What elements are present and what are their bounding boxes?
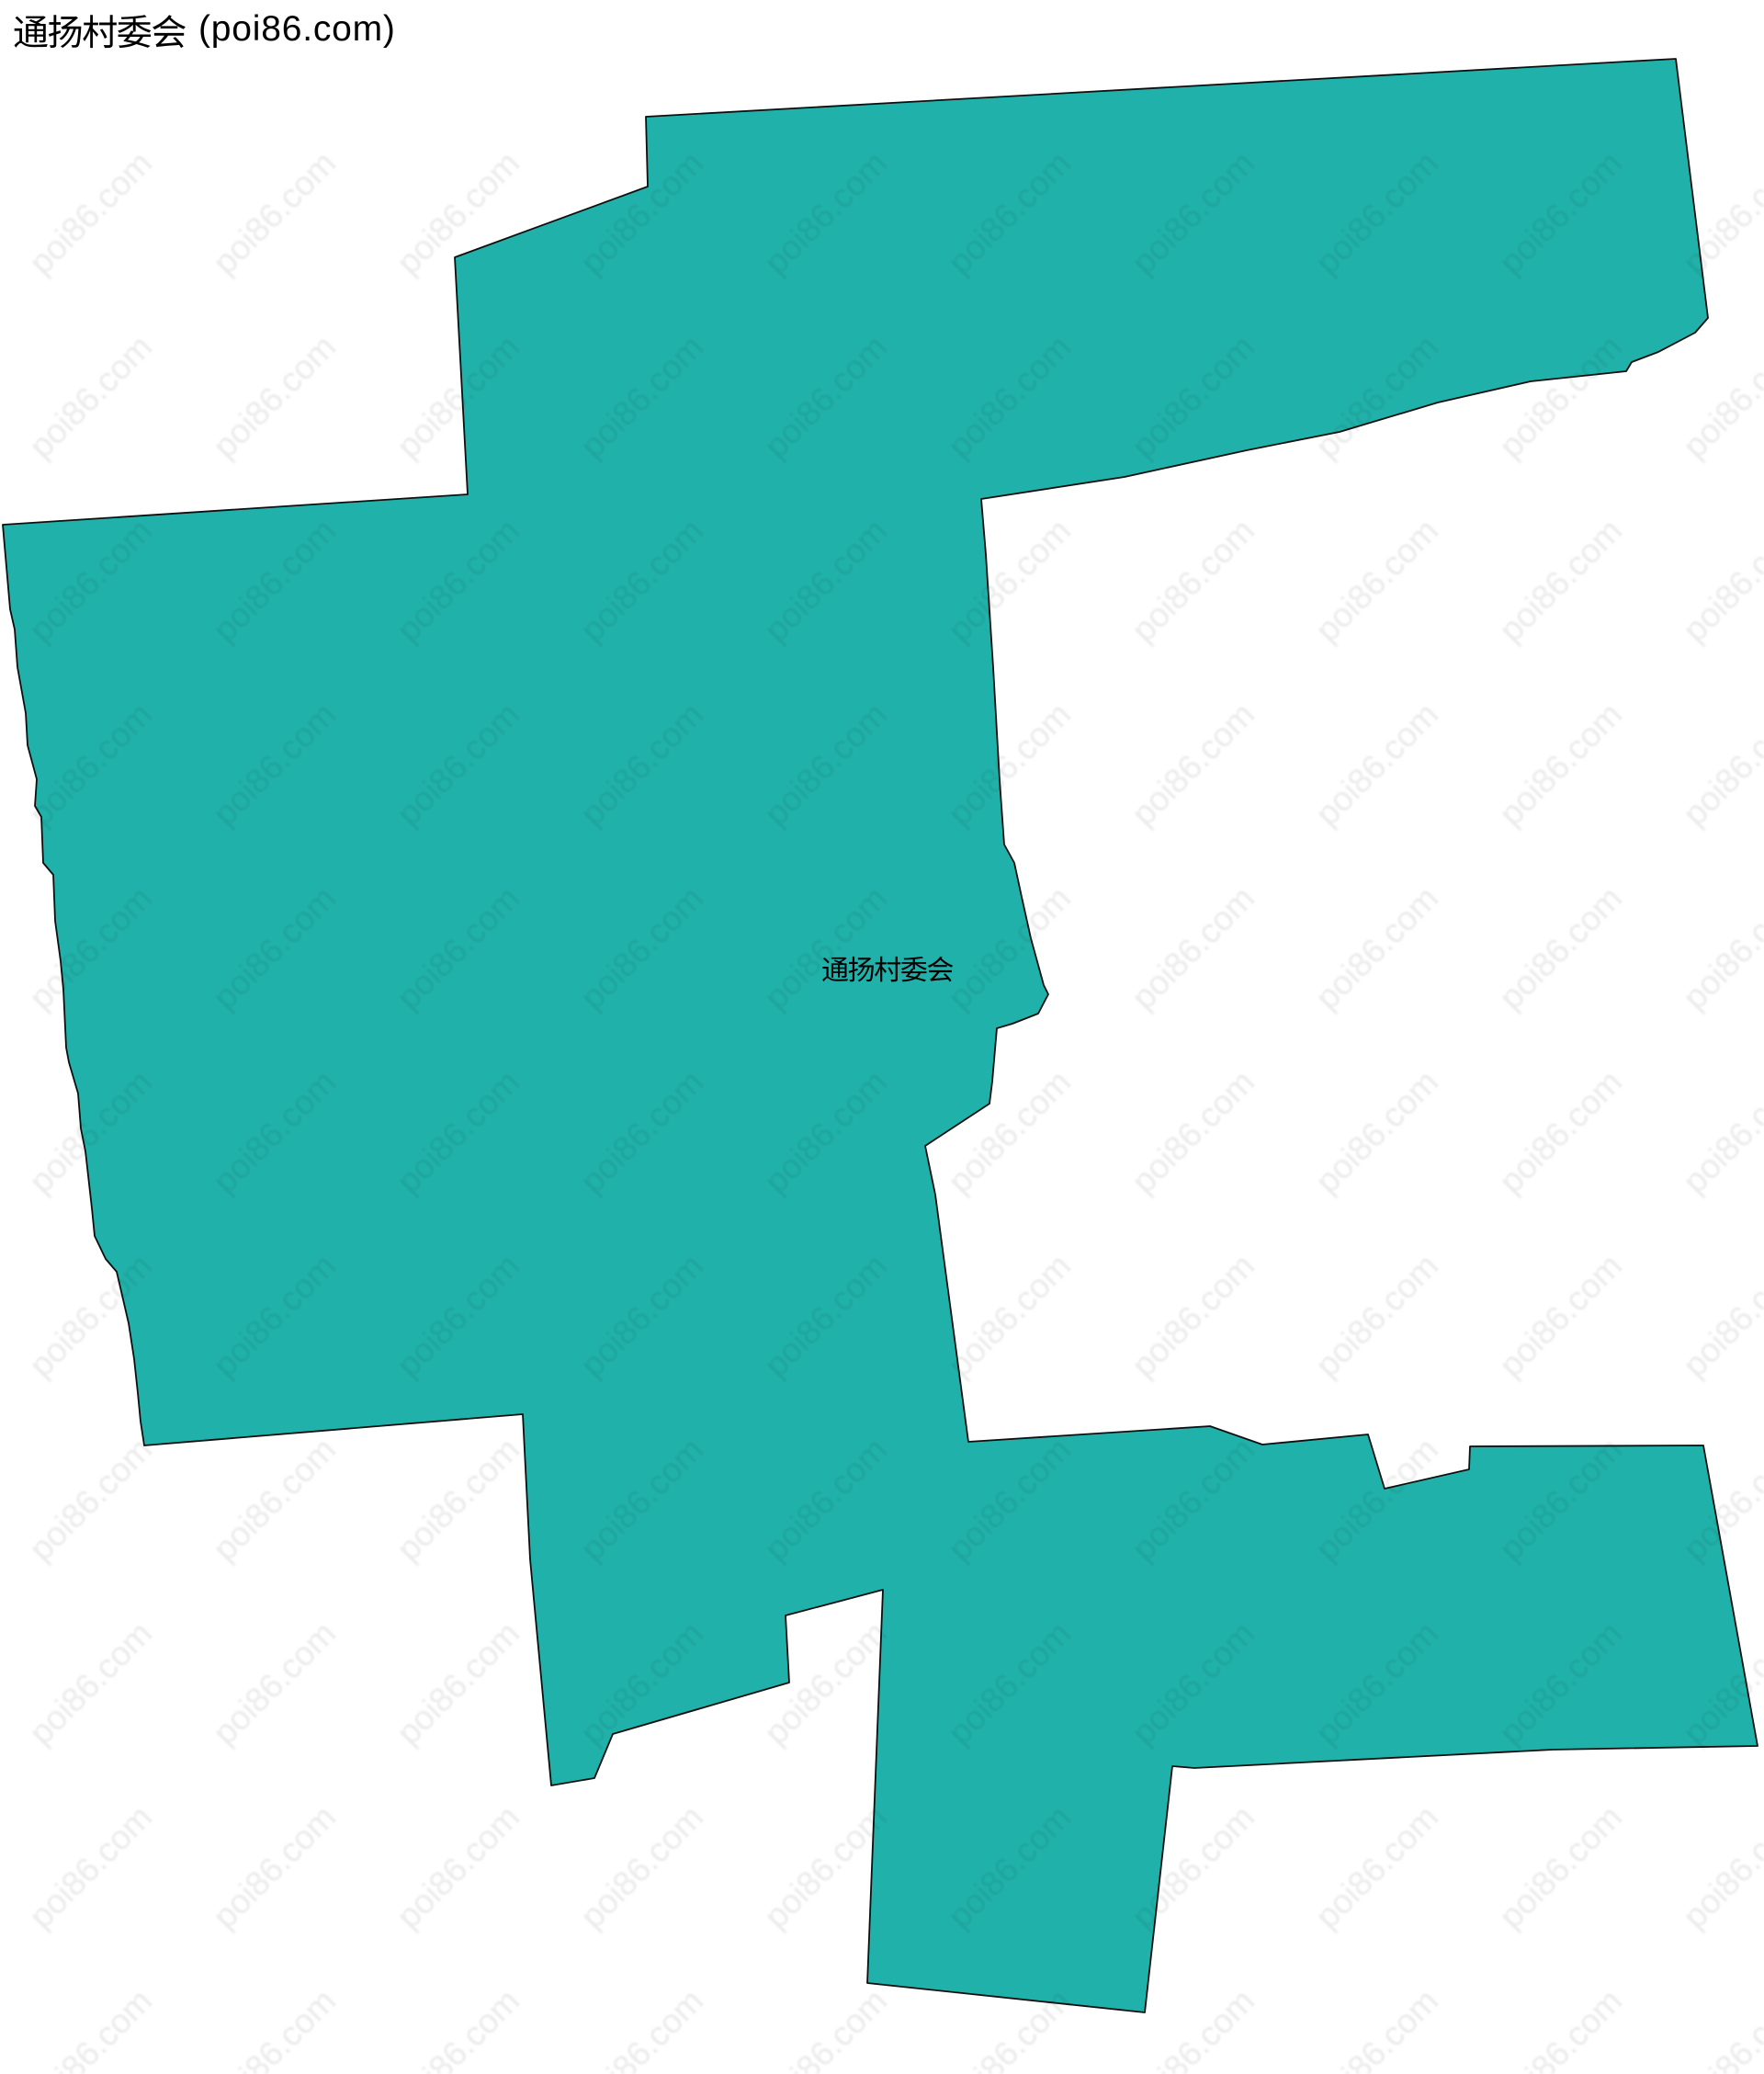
svg-text:(poi86.com): (poi86.com) <box>198 9 396 49</box>
